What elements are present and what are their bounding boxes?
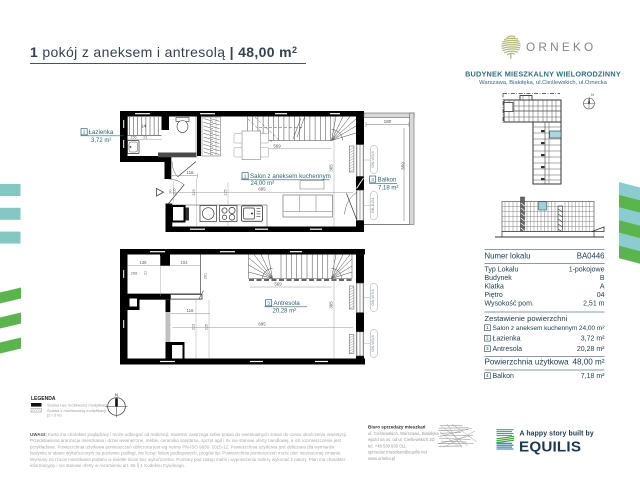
svg-text:A happy story built by: A happy story built by xyxy=(520,431,594,438)
svg-text:Zestawienie powierzchni: Zestawienie powierzchni xyxy=(485,314,568,323)
svg-text:2,51 m: 2,51 m xyxy=(583,301,605,308)
svg-text:Wysokość pom.: Wysokość pom. xyxy=(485,301,534,308)
svg-text:OB-B2/4: OB-B2/4 xyxy=(370,197,375,213)
svg-text:UWAGI: Karta ma charakter pogl: UWAGI: Karta ma charakter poglądowy i mo… xyxy=(30,432,347,437)
svg-text:Antresola: Antresola xyxy=(493,346,523,353)
svg-text:3,72 m²: 3,72 m² xyxy=(581,336,605,343)
svg-text:A: A xyxy=(600,284,605,291)
svg-text:Salon z aneksem kuchennym: Salon z aneksem kuchennym xyxy=(250,173,331,180)
svg-text:tel. +48 530 930 011: tel. +48 530 930 011 xyxy=(368,443,407,448)
svg-text:205: 205 xyxy=(173,188,177,194)
svg-text:116: 116 xyxy=(187,308,195,313)
svg-text:Budynek: Budynek xyxy=(485,275,513,282)
svg-text:24,00 m²: 24,00 m² xyxy=(579,325,605,332)
svg-text:180: 180 xyxy=(384,119,392,124)
svg-text:1 pokój z aneksem i antresolą: 1 pokój z aneksem i antresolą | 48,00 m2 xyxy=(30,44,297,60)
svg-text:Antresola: Antresola xyxy=(274,300,301,307)
svg-text:Warszawa, Białołęka, ul.Cieśle: Warszawa, Białołęka, ul.Cieślewskich, ul… xyxy=(479,80,607,86)
svg-text:138: 138 xyxy=(140,260,148,265)
svg-text:Biuro sprzedaży mieszkań: Biuro sprzedaży mieszkań xyxy=(368,425,426,430)
svg-text:N: N xyxy=(115,392,118,397)
svg-text:261: 261 xyxy=(204,273,208,279)
svg-text:EQUILIS: EQUILIS xyxy=(519,439,581,456)
svg-text:04: 04 xyxy=(597,292,605,299)
svg-text:116: 116 xyxy=(187,170,195,175)
svg-text:wjazd na os. od ul. Cieślewski: wjazd na os. od ul. Cieślewskich 2D xyxy=(368,437,435,442)
svg-text:1-pokojowe: 1-pokojowe xyxy=(569,267,605,274)
svg-text:7,18 m²: 7,18 m² xyxy=(581,373,605,380)
svg-text:223: 223 xyxy=(192,324,196,330)
svg-text:przykładowe. Powierzchnia użyt: przykładowe. Powierzchnia użytkowa pomie… xyxy=(30,444,335,449)
svg-text:ul. Cieślewskich, Warszawa, Bi: ul. Cieślewskich, Warszawa, Białołęka xyxy=(368,431,439,436)
svg-text:685: 685 xyxy=(258,187,266,192)
svg-text:Łazienka: Łazienka xyxy=(493,336,521,343)
svg-text:14: 14 xyxy=(141,124,146,129)
svg-text:685: 685 xyxy=(258,322,266,327)
svg-text:sprzedaz.mieszkan@equilis.net: sprzedaz.mieszkan@equilis.net xyxy=(368,450,428,455)
svg-text:Numer lokalu: Numer lokalu xyxy=(485,252,531,261)
svg-text:4: 4 xyxy=(371,177,374,182)
svg-text:20,28 m²: 20,28 m² xyxy=(273,309,297,315)
svg-text:21: 21 xyxy=(144,271,148,275)
svg-text:Przedstawiona aranżacja mieszk: Przedstawiona aranżacja mieszkania i drz… xyxy=(30,438,342,443)
svg-text:OB-W7/4: OB-W7/4 xyxy=(370,289,375,306)
svg-text:359: 359 xyxy=(401,162,406,170)
svg-text:BA0446: BA0446 xyxy=(577,252,605,261)
svg-text:569: 569 xyxy=(273,143,281,148)
svg-text:225: 225 xyxy=(205,324,209,330)
svg-text:OB-W2/4: OB-W2/4 xyxy=(370,335,375,352)
svg-text:24,00 m²: 24,00 m² xyxy=(251,181,275,187)
svg-text:Salon z aneksem kuchennym: Salon z aneksem kuchennym xyxy=(493,325,578,332)
svg-text:OB-W2/4: OB-W2/4 xyxy=(370,151,375,168)
svg-text:Łazienka: Łazienka xyxy=(89,129,114,136)
svg-text:budynku w stanie wykończonym n: budynku w stanie wykończonym na poziomie… xyxy=(30,451,341,456)
svg-text:2: 2 xyxy=(83,130,86,135)
svg-text:365: 365 xyxy=(328,301,333,309)
svg-text:BUDYNEK MIESZKALNY WIELORODZIN: BUDYNEK MIESZKALNY WIELORODZINNY xyxy=(465,70,621,79)
svg-text:21: 21 xyxy=(143,136,147,140)
svg-text:3: 3 xyxy=(267,301,270,306)
svg-text:104: 104 xyxy=(181,260,189,265)
svg-text:365: 365 xyxy=(328,164,333,172)
svg-text:156: 156 xyxy=(130,136,136,140)
svg-text:(2 i 3 m): (2 i 3 m) xyxy=(47,412,62,417)
svg-text:7,18 m²: 7,18 m² xyxy=(378,186,398,192)
svg-text:Ściana bez możliwości modyfika: Ściana bez możliwości modyfikacji xyxy=(47,403,108,408)
svg-text:www.orneko.pl: www.orneko.pl xyxy=(368,456,395,461)
svg-text:B: B xyxy=(600,275,605,282)
svg-text:Balkon: Balkon xyxy=(378,177,397,184)
svg-text:Wymiary na rzucie mieszkania p: Wymiary na rzucie mieszkania podano w św… xyxy=(30,457,346,462)
svg-text:268: 268 xyxy=(131,271,138,276)
svg-text:Piętro: Piętro xyxy=(485,292,503,299)
svg-text:3,72 m²: 3,72 m² xyxy=(91,138,111,144)
svg-text:Klatka: Klatka xyxy=(485,284,505,291)
svg-text:1: 1 xyxy=(244,174,247,179)
svg-text:ORNEKO: ORNEKO xyxy=(526,40,596,54)
svg-text:Balkon: Balkon xyxy=(493,373,515,380)
svg-text:informacyjny i nie stanowi ofe: informacyjny i nie stanowi oferty w rozu… xyxy=(30,463,185,468)
svg-text:48,00 m²: 48,00 m² xyxy=(573,358,605,367)
svg-text:Powierzchnia użytkowa: Powierzchnia użytkowa xyxy=(485,358,570,367)
svg-text:Typ Lokalu: Typ Lokalu xyxy=(485,267,519,274)
svg-text:569: 569 xyxy=(274,282,282,287)
svg-text:LEGENDA: LEGENDA xyxy=(31,396,56,402)
svg-text:20,28 m²: 20,28 m² xyxy=(577,346,605,353)
svg-text:N: N xyxy=(591,93,594,97)
